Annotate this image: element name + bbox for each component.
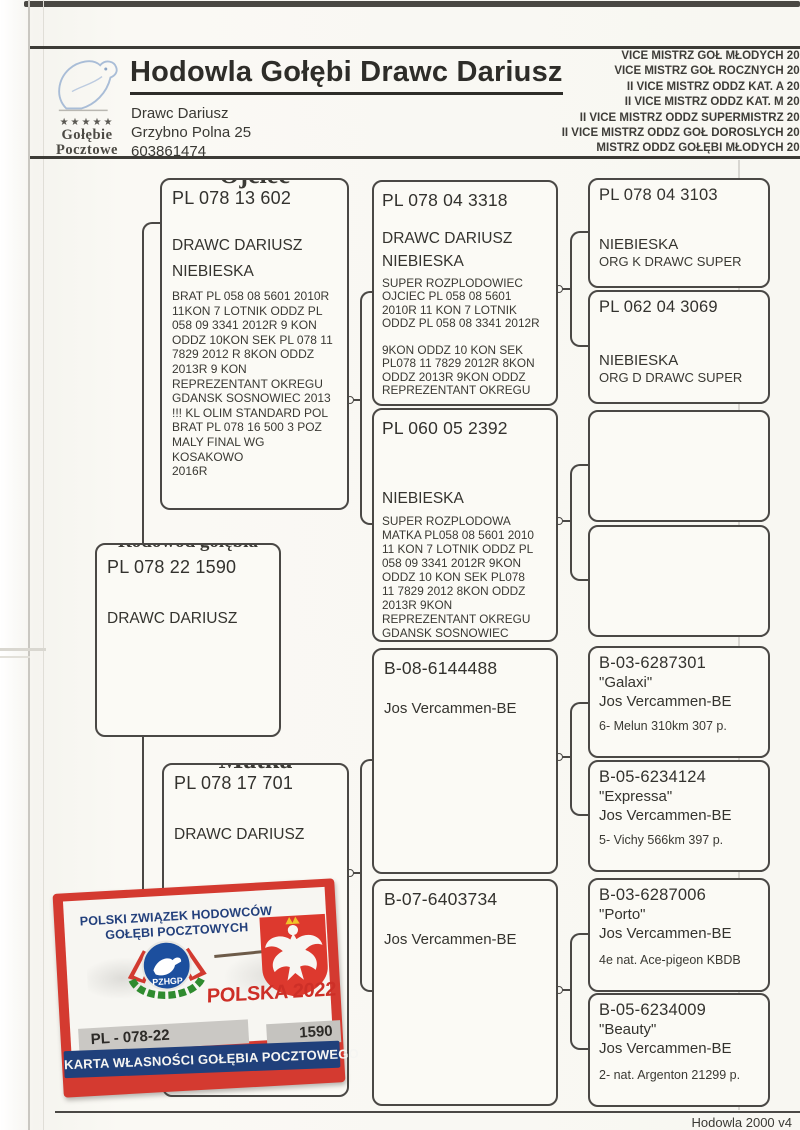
scan-edge-left xyxy=(28,0,30,1130)
scan-fold-mark xyxy=(0,648,46,651)
pedigree-box-mff: o B-03-6287301 "Galaxi" Jos Vercammen-BE… xyxy=(588,646,770,758)
footer-rule xyxy=(55,1111,800,1113)
mf-owner: Jos Vercammen-BE xyxy=(384,699,546,718)
mff-owner: Jos Vercammen-BE xyxy=(599,692,759,711)
father-color: NIEBIESKA xyxy=(172,259,337,285)
mfm-label: M xyxy=(612,760,640,767)
mff-label: o xyxy=(612,646,634,653)
fm-ring: PL 060 05 2392 xyxy=(382,418,548,439)
fmf-label: O xyxy=(612,410,638,417)
mf-label: O xyxy=(396,648,422,655)
mff-ring: B-03-6287301 xyxy=(599,654,759,673)
father-results: BRAT PL 058 08 5601 2010R 11KON 7 LOTNIK… xyxy=(172,289,337,479)
achievements-list: VICE MISTRZ GOŁ MŁODYCH 201 VICE MISTRZ … xyxy=(562,49,800,157)
mfm-owner: Jos Vercammen-BE xyxy=(599,806,759,825)
achievement-line: VICE MISTRZ GOŁ MŁODYCH 201 xyxy=(562,49,800,64)
pedigree-box-fmm-empty: M xyxy=(588,525,770,637)
pedigree-box-father: Ojciec PL 078 13 602 DRAWC DARIUSZ NIEBI… xyxy=(160,178,349,510)
connector-mm-parents-bottom xyxy=(570,990,590,1050)
mother-label: Matka xyxy=(212,763,300,775)
mff-name: "Galaxi" xyxy=(599,673,759,692)
mfm-ring: B-05-6234124 xyxy=(599,768,759,787)
subject-label: Rodowód gołębia xyxy=(111,543,265,553)
mmm-ring: B-05-6234009 xyxy=(599,1001,759,1020)
achievement-line: II VICE MISTRZ ODDZ KAT. M 201 xyxy=(562,95,800,110)
ff-color: NIEBIESKA xyxy=(382,250,548,273)
fm-color: NIEBIESKA xyxy=(382,487,548,510)
mff-result: 6- Melun 310km 307 p. xyxy=(599,719,759,733)
father-owner: DRAWC DARIUSZ xyxy=(172,233,337,259)
breeder-address: Grzybno Polna 25 xyxy=(131,123,251,142)
ff-ring: PL 078 04 3318 xyxy=(382,190,548,211)
pedigree-box-mf: O B-08-6144488 Jos Vercammen-BE xyxy=(372,648,558,874)
pedigree-box-fmf-empty: O xyxy=(588,410,770,522)
connector-fm-parents-top xyxy=(570,464,590,523)
mmf-result: 4e nat. Ace-pigeon KBDB xyxy=(599,953,759,967)
mm-ring: B-07-6403734 xyxy=(384,889,546,910)
scanned-pedigree-sheet: ★★★★★ Gołębie Pocztowe Hodowla Gołębi Dr… xyxy=(0,0,800,1130)
pedigree-box-mm: M B-07-6403734 Jos Vercammen-BE xyxy=(372,879,558,1106)
mfm-result: 5- Vichy 566km 397 p. xyxy=(599,833,759,847)
mmf-ring: B-03-6287006 xyxy=(599,886,759,905)
fff-label: o xyxy=(612,178,634,185)
connector-ff-parents-top xyxy=(570,231,590,291)
pedigree-box-mmf: o B-03-6287006 "Porto" Jos Vercammen-BE … xyxy=(588,878,770,992)
father-ring: PL 078 13 602 xyxy=(172,188,337,209)
mmm-owner: Jos Vercammen-BE xyxy=(599,1039,759,1058)
ffm-color: NIEBIESKA xyxy=(599,351,759,370)
ff-owner: DRAWC DARIUSZ xyxy=(382,227,548,250)
breeder-name: Drawc Dariusz xyxy=(131,104,251,123)
mf-ring: B-08-6144488 xyxy=(384,658,546,679)
breeder-phone: 603861474 xyxy=(131,142,251,161)
father-label: Ojciec xyxy=(212,178,297,190)
connector-fm-parents-bottom xyxy=(570,521,590,581)
scan-edge-top xyxy=(24,1,800,7)
achievement-line: VICE MISTRZ GOŁ ROCZNYCH 201 xyxy=(562,64,800,79)
achievement-line: MISTRZ ODDZ GOŁĘBI MŁODYCH 201 xyxy=(562,141,800,156)
ffm-ring: PL 062 04 3069 xyxy=(599,298,759,317)
page-title: Hodowla Gołębi Drawc Dariusz xyxy=(130,56,563,95)
mmf-name: "Porto" xyxy=(599,905,759,924)
subject-owner: DRAWC DARIUSZ xyxy=(107,606,269,632)
scan-edge-left-2 xyxy=(43,0,44,1130)
logo-word-2: Pocztowe xyxy=(44,143,130,158)
mother-ring: PL 078 17 701 xyxy=(174,773,337,794)
pzhgp-text: PZHGP xyxy=(152,975,183,987)
connector-ff-parents-bottom xyxy=(570,289,590,347)
fm-results: SUPER ROZPLODOWA MATKA PL058 08 5601 201… xyxy=(382,514,548,640)
pedigree-box-fm: M PL 060 05 2392 NIEBIESKA SUPER ROZPLOD… xyxy=(372,408,558,642)
card-inner-panel: POLSKI ZWIĄZEK HODOWCÓW GOŁĘBI POCZTOWYC… xyxy=(63,887,333,1051)
ownership-card: POLSKI ZWIĄZEK HODOWCÓW GOŁĘBI POCZTOWYC… xyxy=(53,878,346,1097)
pigeon-sketch-icon xyxy=(49,54,125,116)
mother-owner: DRAWC DARIUSZ xyxy=(174,822,337,848)
pedigree-box-mfm: M B-05-6234124 "Expressa" Jos Vercammen-… xyxy=(588,760,770,872)
loft-logo: ★★★★★ Gołębie Pocztowe xyxy=(44,54,130,158)
fff-color: NIEBIESKA xyxy=(599,235,759,254)
fff-org: ORG K DRAWC SUPER xyxy=(599,254,759,269)
ff-results: SUPER ROZPLODOWIEC OJCIEC PL 058 08 5601… xyxy=(382,277,548,398)
mmf-owner: Jos Vercammen-BE xyxy=(599,924,759,943)
mfm-name: "Expressa" xyxy=(599,787,759,806)
pedigree-box-ffm: M PL 062 04 3069 NIEBIESKA ORG D DRAWC S… xyxy=(588,290,770,404)
footer-program-label: Hodowla 2000 v4 xyxy=(692,1115,792,1130)
pedigree-box-ff: O PL 078 04 3318 DRAWC DARIUSZ NIEBIESKA… xyxy=(372,180,558,406)
logo-word-1: Gołębie xyxy=(44,128,130,143)
connector-mf-parents-bottom xyxy=(570,757,590,816)
fm-label: M xyxy=(396,408,424,415)
scan-fold-mark-2 xyxy=(0,656,30,658)
mmm-result: 2- nat. Argenton 21299 p. xyxy=(599,1068,759,1082)
connector-mf-parents-top xyxy=(570,702,590,759)
mmm-name: "Beauty" xyxy=(599,1020,759,1039)
mmf-label: o xyxy=(612,878,634,885)
pedigree-box-subject: Rodowód gołębia PL 078 22 1590 DRAWC DAR… xyxy=(95,543,281,737)
breeder-details: Drawc Dariusz Grzybno Polna 25 603861474 xyxy=(131,104,251,161)
fff-ring: PL 078 04 3103 xyxy=(599,186,759,205)
pedigree-box-mmm: M B-05-6234009 "Beauty" Jos Vercammen-BE… xyxy=(588,993,770,1107)
mm-label: M xyxy=(396,879,424,886)
subject-ring: PL 078 22 1590 xyxy=(107,557,269,578)
ffm-org: ORG D DRAWC SUPER xyxy=(599,370,759,385)
pedigree-box-fff: o PL 078 04 3103 NIEBIESKA ORG K DRAWC S… xyxy=(588,178,770,288)
connector-mm-parents-top xyxy=(570,933,590,992)
mm-owner: Jos Vercammen-BE xyxy=(384,930,546,949)
fmm-label: M xyxy=(612,525,640,532)
achievement-line: II VICE MISTRZ ODDZ SUPERMISTRZ 201 xyxy=(562,111,800,126)
achievement-line: II VICE MISTRZ ODDZ KAT. A 201 xyxy=(562,80,800,95)
achievement-line: II VICE MISTRZ ODDZ GOŁ DOROSLYCH 201 xyxy=(562,126,800,141)
mmm-label: M xyxy=(612,993,640,1000)
connector-subject-father xyxy=(142,222,162,545)
ffm-label: M xyxy=(612,290,640,297)
ff-label: O xyxy=(396,180,422,187)
